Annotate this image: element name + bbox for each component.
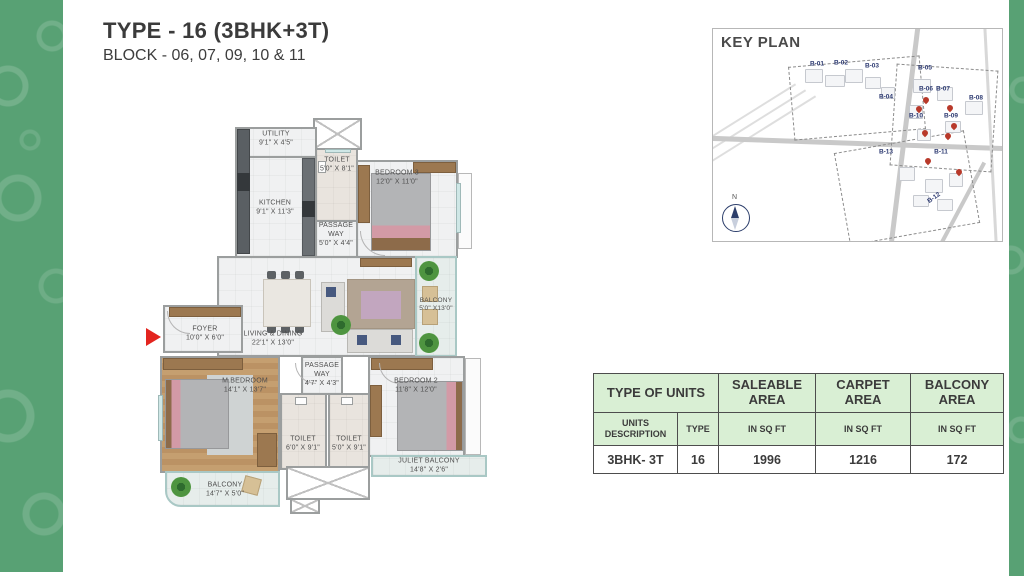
room-label-kitchen: KITCHEN 9'1" X 11'3" (256, 199, 294, 217)
page-subtitle: BLOCK - 06, 07, 09, 10 & 11 (103, 47, 329, 65)
room-label-toilet-b: TOILET 5'0" X 9'1" (332, 435, 366, 453)
room-label-balcony-bottom: BALCONY 14'7" X 5'0" (206, 481, 244, 499)
building-footprint (925, 179, 943, 193)
block-label-b07: B-07 (936, 86, 950, 93)
common-lobby (286, 466, 370, 500)
room-label-juliet-balcony: JULIET BALCONY 14'8" X 2'6" (398, 457, 459, 475)
room-label-passage-top: PASSAGE WAY 5'0" X 4'4" (313, 222, 359, 248)
block-label-b01: B-01 (810, 61, 824, 68)
block-label-b10: B-10 (909, 113, 923, 120)
page-title: TYPE - 16 (3BHK+3T) (103, 18, 329, 44)
building-footprint (865, 77, 881, 89)
south-needle (731, 218, 739, 230)
building-footprint (845, 69, 863, 83)
cell-type: 16 (678, 446, 719, 473)
block-label-b03: B-03 (865, 63, 879, 70)
col-header-saleable-area: SALEABLE AREA (719, 374, 816, 413)
tv-unit (360, 258, 412, 267)
col-header-type-of-units: TYPE OF UNITS (594, 374, 719, 413)
cushion (391, 335, 401, 345)
room-label-living-dining: LIVING & DINING 22'1" X 13'0" (243, 330, 302, 348)
col-header-balcony-area: BALCONY AREA (911, 374, 1003, 413)
cell-balcony-area: 172 (911, 446, 1003, 473)
room-label-toilet-top: TOILET 5'0" X 8'1" (320, 156, 354, 174)
room-label-toilet-a: TOILET 6'0" X 9'1" (286, 435, 320, 453)
decorative-pattern-left (0, 0, 63, 572)
bed (165, 379, 229, 449)
block-label-b09: B-09 (944, 113, 958, 120)
room-label-balcony-right: BALCONY 5'0" X13'0" (419, 297, 453, 313)
building-footprint (899, 167, 915, 181)
key-plan-map: KEY PLAN B-01 B-02 B-03 B-04 (712, 28, 1003, 242)
room-label-passage-mid: PASSAGE WAY 4'7" X 4'3" (299, 362, 345, 388)
decorative-pattern-right (1009, 0, 1024, 576)
subheader-units-description: UNITS DESCRIPTION (594, 413, 678, 446)
building-footprint (965, 101, 983, 115)
building-footprint (937, 199, 953, 211)
compass-icon: N (713, 189, 759, 239)
block-label-b06: B-06 (919, 86, 933, 93)
north-needle (731, 206, 739, 218)
title-block: TYPE - 16 (3BHK+3T) BLOCK - 06, 07, 09, … (103, 18, 329, 65)
desk (370, 385, 382, 437)
washbasin (295, 397, 307, 405)
floor-plan-page: TYPE - 16 (3BHK+3T) BLOCK - 06, 07, 09, … (0, 0, 1024, 576)
plant-icon (419, 261, 439, 281)
wardrobe (163, 358, 243, 370)
washbasin (341, 397, 353, 405)
block-label-b11: B-11 (934, 149, 948, 156)
window-sill (325, 149, 351, 153)
plant-icon (331, 315, 351, 335)
subheader-balcony-sqft: IN SQ FT (911, 413, 1003, 446)
wardrobe (358, 165, 370, 223)
building-footprint (805, 69, 823, 83)
cushion (357, 335, 367, 345)
cushion (326, 287, 336, 297)
subheader-saleable-sqft: IN SQ FT (719, 413, 816, 446)
dining-chair (295, 271, 304, 279)
subheader-type: TYPE (678, 413, 719, 446)
desk (413, 162, 456, 173)
key-plan-title: KEY PLAN (721, 34, 801, 51)
block-label-b02: B-02 (834, 60, 848, 67)
room-label-master-bedroom: M.BEDROOM 14'1" X 13'7" (222, 377, 268, 395)
north-label: N (732, 194, 737, 201)
kitchen-counter (237, 129, 250, 254)
block-label-b08: B-08 (969, 95, 983, 102)
floor-plan-drawing: UTILITY 9'1" X 4'5" TOILET 5'0" X 8'1" K… (145, 113, 507, 527)
window-sill (158, 395, 163, 441)
room-label-bedroom3: BEDROOM 3 12'0" X 11'0" (375, 169, 419, 187)
window-sill (456, 183, 461, 233)
unit-details-table: TYPE OF UNITS SALEABLE AREA CARPET AREA … (593, 373, 1004, 474)
carpet (361, 291, 401, 319)
block-label-b05: B-05 (918, 65, 932, 72)
ac-ledge-bedroom2 (465, 358, 481, 455)
room-label-utility: UTILITY 9'1" X 4'5" (259, 130, 293, 148)
cell-unit-description: 3BHK- 3T (594, 446, 678, 473)
cell-carpet-area: 1216 (816, 446, 911, 473)
block-label-b04: B-04 (879, 94, 893, 101)
dining-table (263, 279, 311, 327)
plant-icon (171, 477, 191, 497)
dining-chair (267, 271, 276, 279)
shaft-small (290, 498, 320, 514)
building-footprint (949, 173, 963, 187)
room-label-bedroom2: BEDROOM 2 11'8" X 12'0" (394, 377, 438, 395)
hob-icon (302, 201, 315, 217)
room-label-foyer: FOYER 10'0" X 6'0" (186, 325, 224, 343)
desk (257, 433, 277, 467)
cell-saleable-area: 1996 (719, 446, 816, 473)
dining-chair (281, 271, 290, 279)
col-header-carpet-area: CARPET AREA (816, 374, 911, 413)
kitchen-appliance (237, 173, 250, 191)
plant-icon (419, 333, 439, 353)
entry-arrow-icon (146, 328, 161, 346)
subheader-carpet-sqft: IN SQ FT (816, 413, 911, 446)
block-label-b13: B-13 (879, 149, 893, 156)
shaft-stairs (313, 118, 362, 150)
building-footprint (825, 75, 845, 87)
